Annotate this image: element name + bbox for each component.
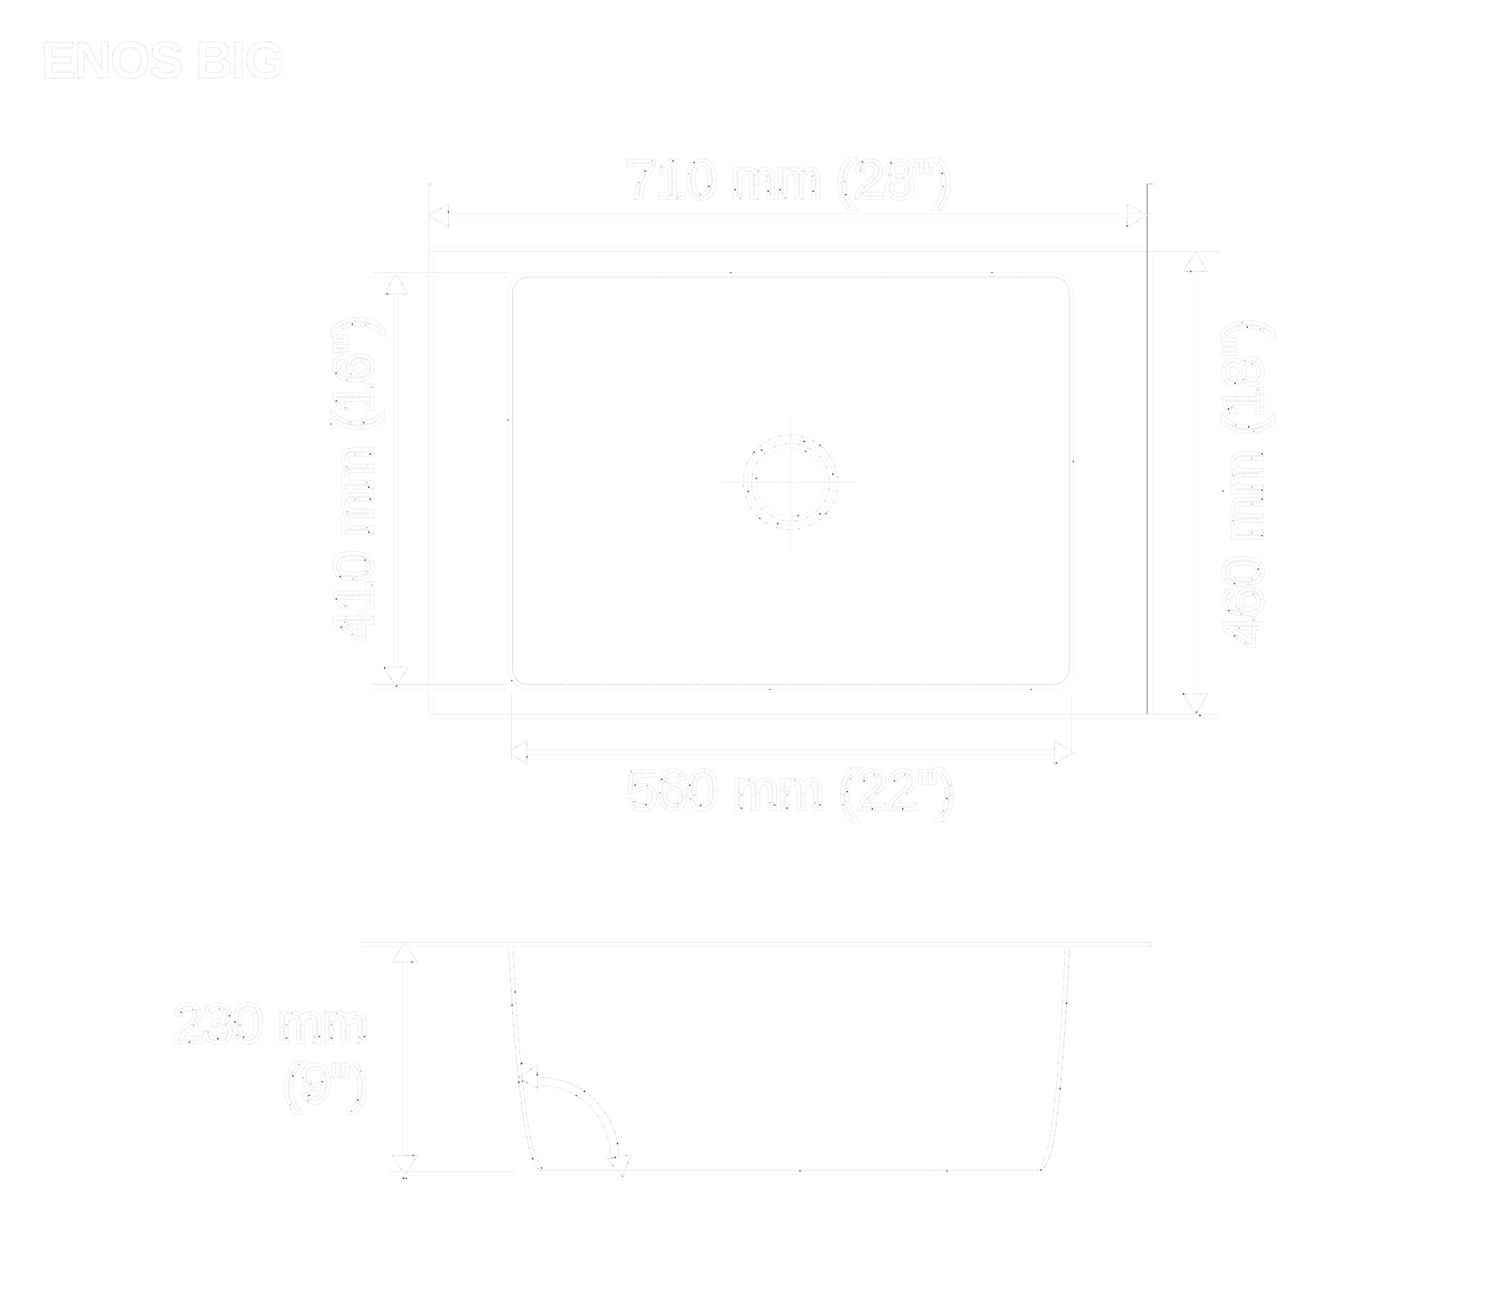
svg-text:410 mm (16"): 410 mm (16") (324, 316, 384, 641)
svg-text:560 mm (22"): 560 mm (22") (627, 760, 955, 821)
svg-text:710 mm (28"): 710 mm (28") (626, 150, 951, 210)
svg-text:(9"): (9") (283, 1054, 368, 1114)
svg-text:460 mm (18"): 460 mm (18") (1213, 319, 1274, 647)
svg-text:ENOS BIG: ENOS BIG (41, 32, 283, 90)
svg-text:230 mm: 230 mm (173, 994, 368, 1054)
